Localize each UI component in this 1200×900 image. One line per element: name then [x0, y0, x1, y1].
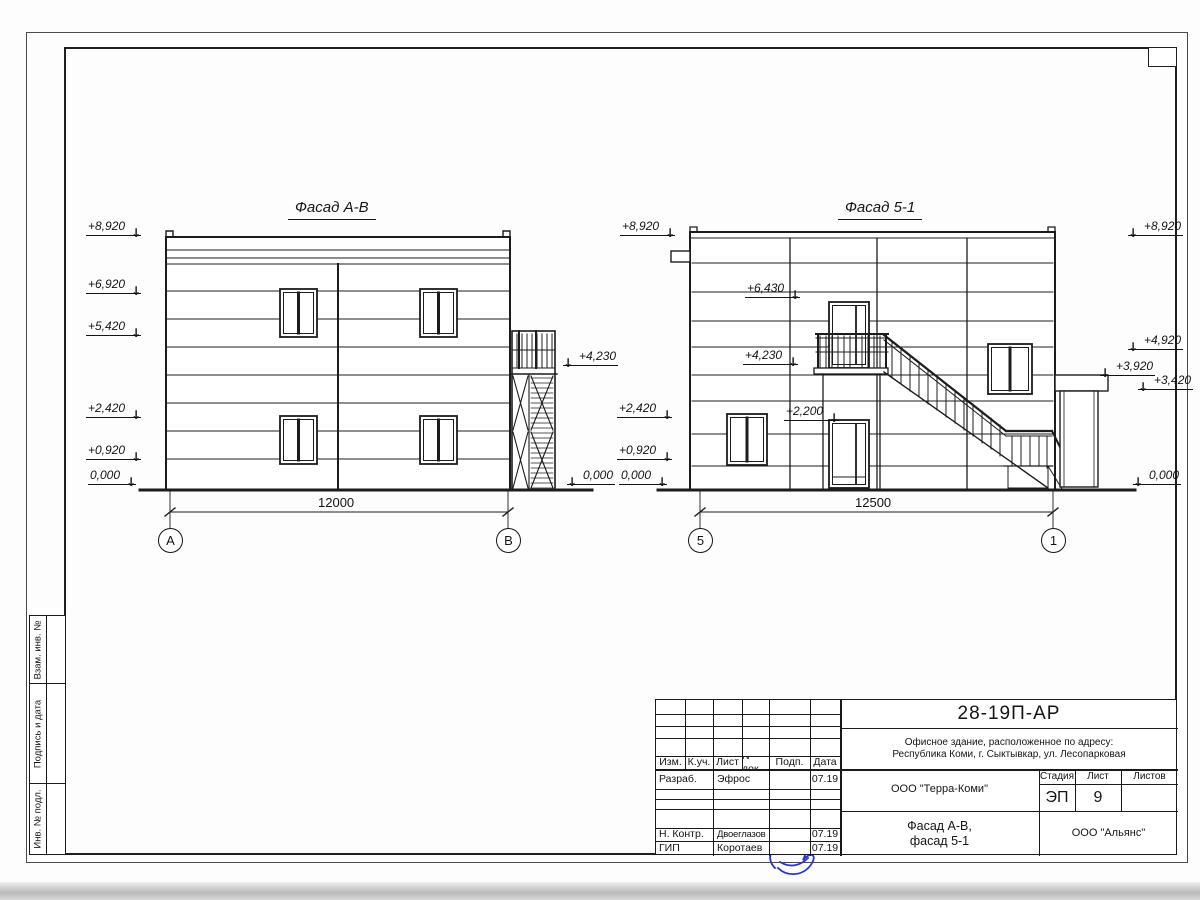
elevation-mark: +6,430↓ — [745, 279, 800, 298]
elevation-arrow-icon: ↓ — [829, 412, 839, 424]
axis-bubble: 1 — [1041, 528, 1066, 553]
elevation-arrow-icon: ↓ — [1138, 381, 1148, 393]
elevation-mark: +3,420↓ — [1138, 371, 1193, 390]
sheet-label: Лист — [1075, 769, 1121, 784]
stamp-date: 07.19 — [810, 769, 840, 789]
elevation-arrow-icon: ↓ — [1128, 341, 1138, 353]
elevation-arrow-icon: ↓ — [665, 227, 675, 239]
elevation-arrow-icon: ↓ — [131, 227, 141, 239]
facade-ab-title: Фасад А-В — [288, 200, 376, 220]
elevation-arrow-icon: ↓ — [131, 285, 141, 297]
elevation-mark: +6,920↓ — [86, 275, 141, 294]
elevation-mark: +8,920↓ — [1128, 217, 1183, 236]
elevation-arrow-icon: ↓ — [1133, 476, 1143, 488]
elevation-mark: +4,920↓ — [1128, 331, 1183, 350]
elevation-arrow-icon: ↓ — [1128, 227, 1138, 239]
elevation-mark: 0,000↓ — [567, 466, 615, 485]
stamp-date: 07.19 — [810, 828, 840, 841]
elevation-arrow-icon: ↓ — [788, 356, 798, 368]
elevation-mark: +8,920↓ — [86, 217, 141, 236]
elevation-mark: +2,420↓ — [86, 399, 141, 418]
stamp-header-kuch: К.уч. — [685, 756, 713, 769]
elevation-mark: 0,000↓ — [1133, 466, 1181, 485]
sidebar-cell-vzam: Взам. инв. № — [29, 615, 66, 685]
contractor-org: ООО "Альянс" — [1039, 811, 1178, 856]
elevation-mark: +5,420↓ — [86, 317, 141, 336]
elevation-arrow-icon: ↓ — [126, 476, 136, 488]
stamp-header-list: Лист — [713, 756, 742, 769]
title-block: Изм. К.уч. Лист N док. Подп. Дата Разраб… — [655, 699, 1177, 855]
elevation-mark: +0,920↓ — [617, 441, 672, 460]
elevation-mark: 0,000↓ — [619, 466, 667, 485]
elevation-arrow-icon: ↓ — [131, 327, 141, 339]
sidebar-cell-inv: Инв. № подл. — [29, 783, 66, 855]
sidebar-cell-podpis: Подпись и дата — [29, 683, 66, 785]
elevation-mark: +4,230↓ — [743, 346, 798, 365]
project-address: Офисное здание, расположенное по адресу:… — [840, 728, 1178, 769]
elevation-arrow-icon: ↓ — [1100, 367, 1110, 379]
facade-51-title: Фасад 5-1 — [838, 200, 922, 220]
elevation-arrow-icon: ↓ — [563, 357, 573, 369]
elevation-arrow-icon: ↓ — [657, 476, 667, 488]
sheets-label: Листов — [1121, 769, 1178, 784]
stamp-header-podp: Подп. — [769, 756, 810, 769]
elevation-arrow-icon: ↓ — [790, 289, 800, 301]
elevation-arrow-icon: ↓ — [131, 409, 141, 421]
sheet-corner-box — [1148, 47, 1177, 67]
sheet-title: Фасад А-В, фасад 5-1 — [840, 811, 1039, 856]
elevation-arrow-icon: ↓ — [567, 476, 577, 488]
elevation-arrow-icon: ↓ — [131, 451, 141, 463]
dimension-label: 12500 — [855, 496, 891, 509]
axis-bubble: А — [158, 528, 183, 553]
drawing-sheet: Фасад А-В Фасад 5-1 +8,920↓ +6,920↓ +5,4… — [0, 0, 1200, 900]
sheets-value — [1121, 784, 1178, 811]
axis-bubble: 5 — [688, 528, 713, 553]
elevation-mark: 0,000↓ — [88, 466, 136, 485]
elevation-mark: +4,230↓ — [563, 347, 618, 366]
document-code: 28-19П-АР — [840, 700, 1178, 728]
axis-bubble: В — [496, 528, 521, 553]
scan-edge-artifact — [0, 882, 1200, 900]
stamp-header-data: Дата — [810, 756, 840, 769]
sidebar-label: Инв. № подл. — [33, 789, 43, 848]
sheet-value: 9 — [1075, 784, 1121, 811]
elevation-mark: +8,920↓ — [620, 217, 675, 236]
stamp-header-izm: Изм. — [656, 756, 685, 769]
stamp-name: Эфрос — [714, 769, 769, 789]
stamp-role: Н. Контр. — [656, 828, 713, 841]
stage-value: ЭП — [1039, 784, 1075, 811]
stamp-header-ndok: N док. — [742, 756, 769, 769]
stamp-date: 07.19 — [810, 841, 840, 856]
dimension-label: 12000 — [318, 496, 354, 509]
designer-org: ООО "Терра-Коми" — [840, 769, 1039, 811]
elevation-mark: +2,420↓ — [617, 399, 672, 418]
sidebar-label: Подпись и дата — [33, 700, 43, 768]
stage-label: Стадия — [1039, 769, 1075, 784]
elevation-arrow-icon: ↓ — [662, 451, 672, 463]
elevation-mark: +2,200↓ — [784, 402, 839, 421]
elevation-arrow-icon: ↓ — [662, 409, 672, 421]
stamp-name: Двоеглазов — [714, 828, 769, 841]
elevation-mark: +0,920↓ — [86, 441, 141, 460]
sidebar-label: Взам. инв. № — [33, 621, 43, 680]
stamp-role: ГИП — [656, 841, 713, 856]
stamp-name: Коротаев — [714, 841, 769, 856]
stamp-role: Разраб. — [656, 769, 713, 789]
